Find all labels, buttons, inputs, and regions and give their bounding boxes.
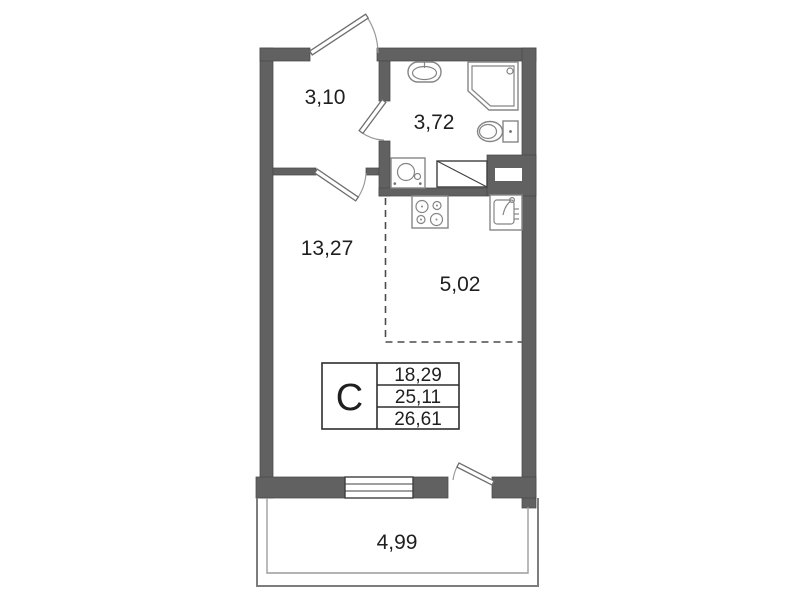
room-door-icon	[315, 169, 366, 201]
floor-plan: 3,10 3,72 13,27 5,02 4,99 С 18,29 25,11 …	[0, 0, 799, 600]
shower-icon	[468, 62, 518, 110]
bathroom-door-icon	[359, 100, 386, 140]
wall-bottom-mid	[413, 477, 448, 498]
bathroom-sink-icon	[408, 61, 441, 82]
wall-left	[260, 48, 273, 498]
living-room-area-label: 13,27	[301, 237, 354, 260]
kitchen-zone-area-label: 5,02	[440, 273, 481, 296]
kitchen-sink-icon	[490, 195, 522, 230]
stamp-row-2: 25,11	[395, 387, 441, 408]
wall-top-left	[260, 48, 310, 61]
wall-hall-room-stub	[366, 168, 379, 175]
balcony-area-label: 4,99	[377, 531, 418, 554]
balcony-door-icon	[453, 463, 494, 485]
floor-plan-canvas: 3,10 3,72 13,27 5,02 4,99 С 18,29 25,11 …	[0, 0, 799, 600]
wall-bathroom-bottom	[379, 188, 487, 196]
wall-bottom-left	[256, 477, 345, 498]
hallway-area-label: 3,10	[305, 86, 346, 109]
wall-right	[522, 48, 536, 508]
wall-bathroom-left-upper	[379, 61, 390, 101]
stove-icon	[412, 196, 448, 228]
wall-niche	[495, 168, 522, 181]
stamp-row-1: 18,29	[394, 365, 442, 386]
wall-hall-room-divider	[273, 168, 316, 175]
toilet-icon	[478, 121, 519, 142]
wall-top-right	[377, 48, 536, 61]
wall-bottom-right	[492, 477, 536, 498]
vent-shaft-icon	[437, 161, 487, 187]
entry-door-icon	[310, 14, 378, 55]
bathroom-area-label: 3,72	[414, 111, 455, 134]
window-icon	[345, 477, 413, 498]
washing-machine-icon	[391, 158, 425, 188]
walls	[256, 48, 536, 508]
stamp-row-3: 26,61	[394, 409, 442, 430]
area-stamp: С 18,29 25,11 26,61	[322, 363, 459, 430]
stamp-letter: С	[336, 377, 363, 419]
